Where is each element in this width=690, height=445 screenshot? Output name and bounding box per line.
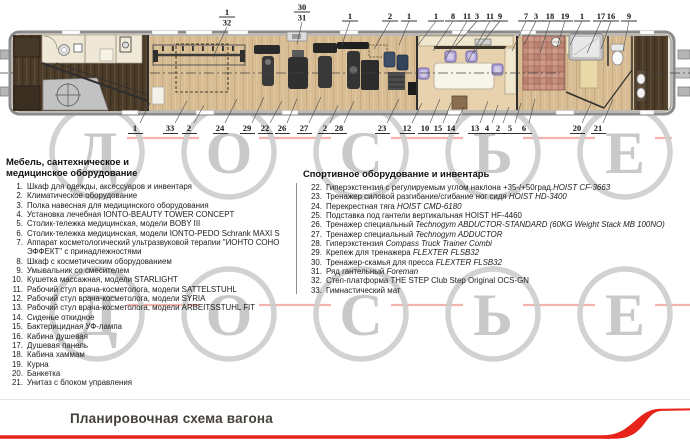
svg-text:17: 17 xyxy=(597,11,606,21)
cabinet-row xyxy=(419,36,513,46)
shower-cabin xyxy=(569,34,603,60)
svg-text:26: 26 xyxy=(278,123,287,133)
vestibule-sink xyxy=(636,70,646,102)
svg-text:29: 29 xyxy=(243,123,252,133)
svg-text:32: 32 xyxy=(223,18,232,28)
svg-text:16: 16 xyxy=(607,11,616,21)
svg-text:3: 3 xyxy=(534,11,538,21)
svg-text:4: 4 xyxy=(485,123,490,133)
svg-text:8: 8 xyxy=(451,11,455,21)
svg-text:33: 33 xyxy=(166,123,175,133)
svg-text:24: 24 xyxy=(216,123,225,133)
watermark-letter: Д xyxy=(76,282,117,348)
svg-text:28: 28 xyxy=(335,123,344,133)
toilet-icon xyxy=(611,44,624,65)
svg-text:2: 2 xyxy=(388,11,392,21)
svg-text:22: 22 xyxy=(261,123,270,133)
svg-text:21: 21 xyxy=(594,123,603,133)
svg-text:1: 1 xyxy=(407,11,411,21)
svg-text:3: 3 xyxy=(475,11,479,21)
watermark-letter: Ь xyxy=(473,282,513,348)
mirror-icon xyxy=(74,44,82,52)
stool xyxy=(418,68,429,79)
page-title: Планировочная схема вагона xyxy=(70,411,273,426)
bench xyxy=(152,87,164,104)
svg-text:19: 19 xyxy=(561,11,570,21)
page: ДОСЬЕДОСЬЕ xyxy=(0,0,690,445)
svg-text:27: 27 xyxy=(300,123,309,133)
svg-text:15: 15 xyxy=(434,123,443,133)
column-divider xyxy=(296,183,297,294)
cabinet xyxy=(14,37,40,57)
svg-text:6: 6 xyxy=(522,123,526,133)
svg-text:5: 5 xyxy=(508,123,512,133)
svg-text:1: 1 xyxy=(580,11,584,21)
svg-text:2: 2 xyxy=(187,123,191,133)
watermark-letter: С xyxy=(339,282,382,348)
massage-couch xyxy=(434,63,494,89)
svg-text:13: 13 xyxy=(471,123,480,133)
svg-text:1: 1 xyxy=(225,7,229,17)
wagon-floor-plan: 132303112118113119731819117169 133224292… xyxy=(0,0,690,150)
stool xyxy=(466,51,477,62)
svg-text:20: 20 xyxy=(573,123,582,133)
svg-text:7: 7 xyxy=(524,11,529,21)
svg-text:2: 2 xyxy=(496,123,500,133)
svg-text:23: 23 xyxy=(378,123,387,133)
svg-text:12: 12 xyxy=(403,123,412,133)
watermark-letter: Е xyxy=(605,282,645,348)
svg-text:9: 9 xyxy=(498,11,502,21)
cabinet xyxy=(14,86,40,110)
svg-text:10: 10 xyxy=(421,123,430,133)
svg-text:9: 9 xyxy=(627,11,631,21)
svg-text:11: 11 xyxy=(486,11,494,21)
svg-text:14: 14 xyxy=(447,123,456,133)
svg-text:18: 18 xyxy=(546,11,555,21)
svg-text:31: 31 xyxy=(298,13,307,23)
banquette xyxy=(580,58,598,88)
svg-text:1: 1 xyxy=(434,11,438,21)
side-table xyxy=(452,96,467,109)
cabinet-column xyxy=(505,48,516,94)
svg-text:1: 1 xyxy=(348,11,352,21)
svg-text:11: 11 xyxy=(463,11,471,21)
svg-text:30: 30 xyxy=(298,2,307,12)
svg-text:2: 2 xyxy=(323,123,327,133)
svg-text:1: 1 xyxy=(133,123,137,133)
watermark-letter: О xyxy=(206,282,253,348)
machine xyxy=(361,60,379,90)
